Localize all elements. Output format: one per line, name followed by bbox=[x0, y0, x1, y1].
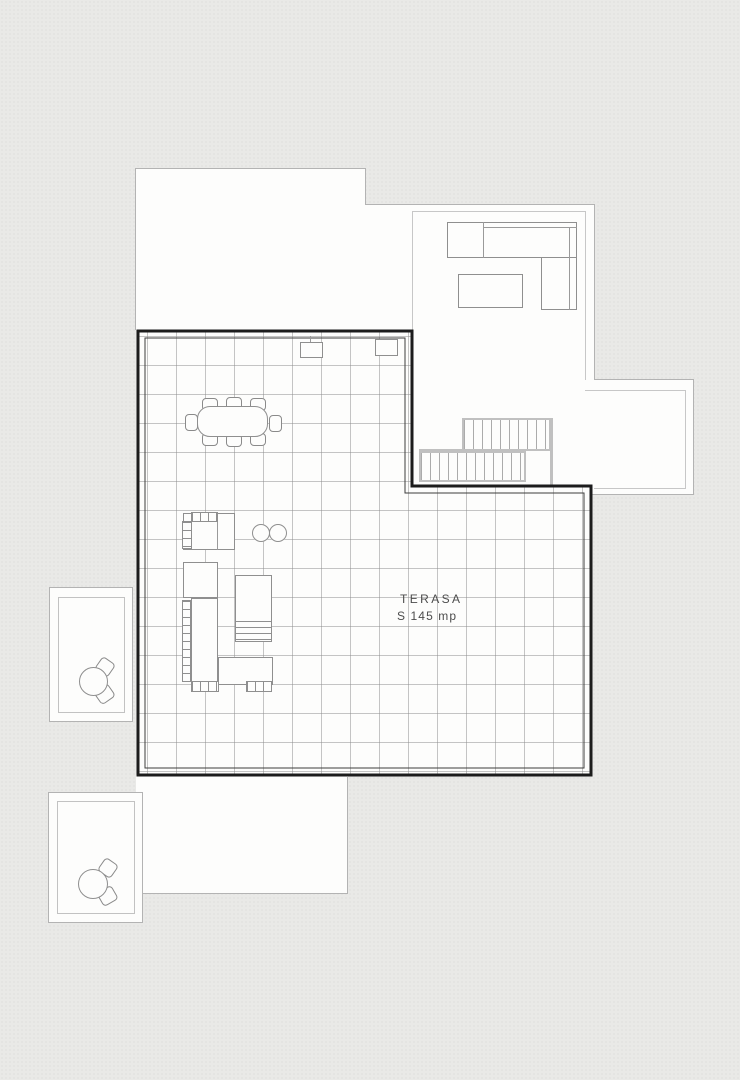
counter-mid-block bbox=[191, 598, 218, 682]
counter-top-block bbox=[183, 562, 218, 598]
grill-hatch-left bbox=[182, 521, 192, 549]
counter-hatch-left bbox=[182, 600, 191, 682]
terrace-area-label: S 145 mp bbox=[397, 609, 457, 623]
floor-plan: TERASA S 145 mp bbox=[0, 0, 740, 1080]
counter-hatch-bottom-2 bbox=[246, 681, 272, 692]
terrace-name-label: TERASA bbox=[400, 592, 462, 606]
counter-hatch-bottom-1 bbox=[191, 681, 219, 692]
stool-2 bbox=[269, 524, 287, 542]
equipment-box-1-tick bbox=[310, 336, 311, 342]
stool-1 bbox=[252, 524, 270, 542]
grill-hatch-top bbox=[191, 512, 218, 522]
dining-chair-right bbox=[269, 415, 282, 432]
equipment-box-1 bbox=[300, 342, 323, 358]
equipment-box-2 bbox=[375, 339, 398, 356]
dining-table bbox=[197, 406, 268, 437]
sun-lounger bbox=[235, 575, 272, 642]
balcony-lower-round-table bbox=[78, 869, 108, 899]
sun-lounger-slats bbox=[236, 616, 271, 641]
balcony-upper-round-table bbox=[79, 667, 108, 696]
